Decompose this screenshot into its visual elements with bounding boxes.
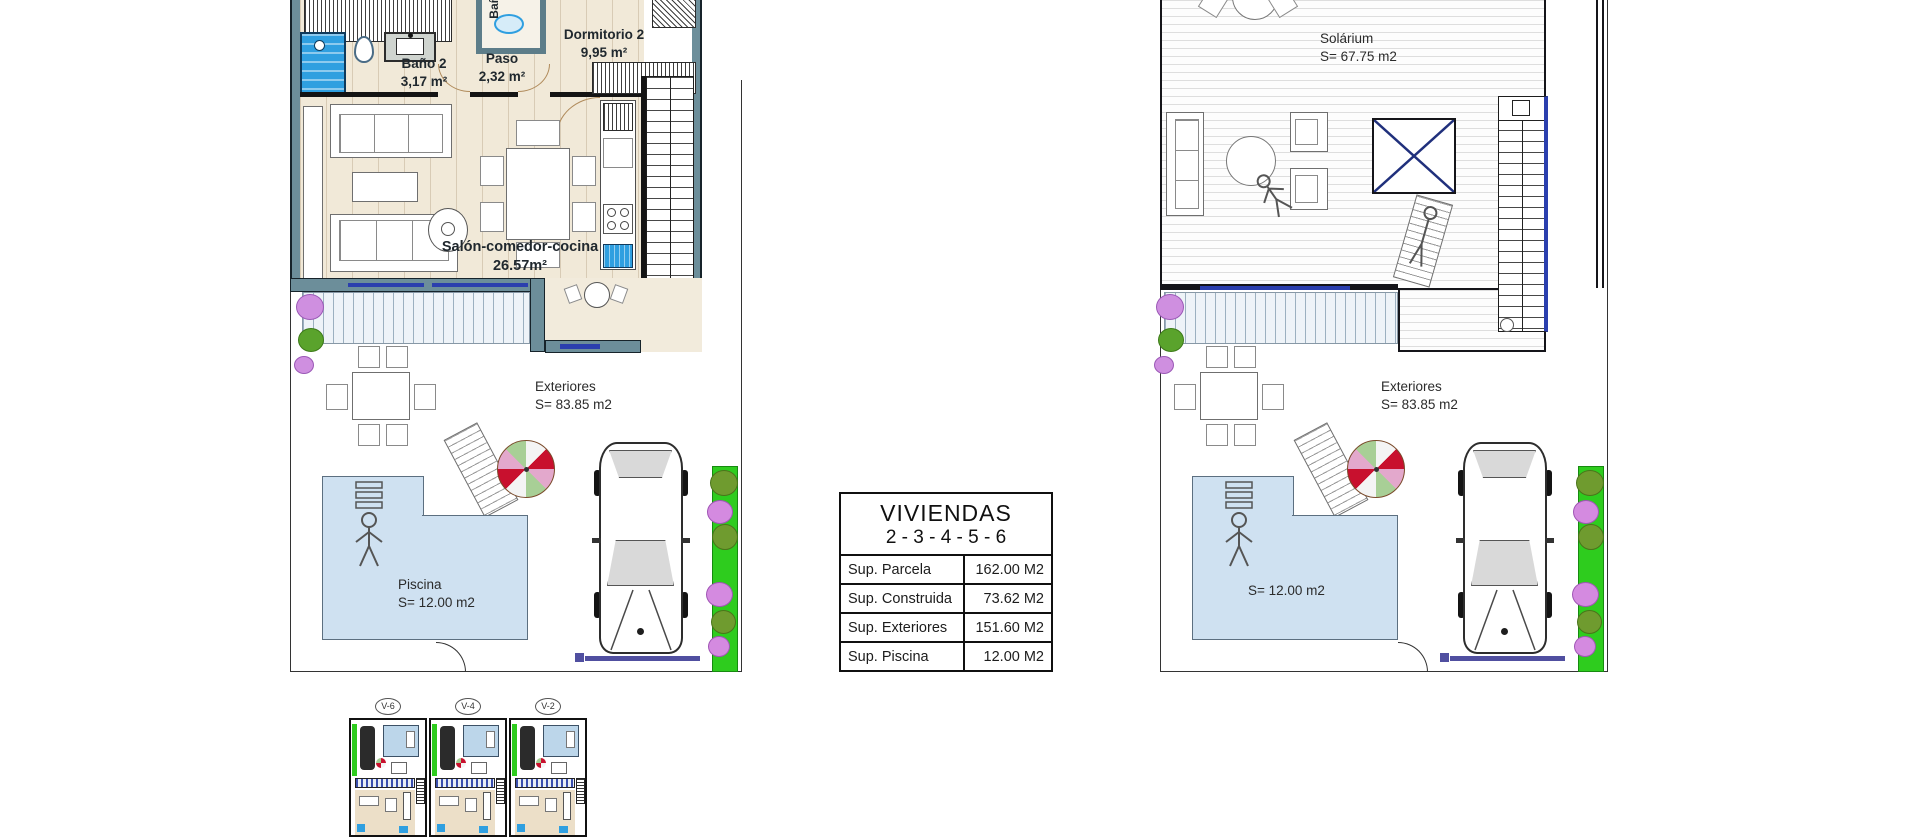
row-label: Sup. Parcela bbox=[841, 562, 963, 578]
chair bbox=[516, 120, 560, 146]
flower-bush bbox=[1156, 294, 1184, 320]
window-strip bbox=[1200, 286, 1350, 290]
hedge-flower bbox=[706, 582, 733, 607]
burner bbox=[607, 208, 616, 217]
mini-table bbox=[551, 762, 567, 774]
pergola-slats bbox=[1164, 292, 1398, 344]
mini-stairs bbox=[576, 778, 585, 804]
piscina-area: S= 12.00 m2 bbox=[398, 594, 475, 612]
salon-name: Salón-comedor-cocina bbox=[428, 238, 612, 257]
thumbnail-badge: V-2 bbox=[535, 698, 561, 715]
car-badge bbox=[1501, 628, 1508, 635]
car-mirror bbox=[1456, 538, 1465, 543]
sofa-cushions bbox=[1175, 119, 1199, 209]
mini-shower bbox=[357, 824, 365, 832]
garden-dining-table bbox=[352, 372, 410, 420]
mini-floor bbox=[515, 790, 575, 837]
porch-door-blue bbox=[560, 344, 600, 349]
piscina-label: Piscina S= 12.00 m2 bbox=[398, 576, 475, 612]
oven bbox=[603, 138, 633, 168]
garden-chair bbox=[414, 384, 436, 410]
paso-label: Paso 2,32 m² bbox=[452, 50, 552, 85]
parasol-pole bbox=[1374, 467, 1379, 472]
vanity-tap-icon bbox=[408, 33, 413, 38]
car-body bbox=[599, 442, 683, 654]
mini-stairs bbox=[416, 778, 425, 804]
mini-floor bbox=[355, 790, 415, 837]
skylight-x-square bbox=[1372, 118, 1456, 194]
roof-sofa bbox=[1166, 112, 1204, 216]
floorplan-sheet: Baño 3, Baño 2 3,17 m² Paso 2,32 m² Dorm… bbox=[0, 0, 1920, 837]
mini-sink bbox=[399, 826, 408, 833]
tv-unit bbox=[303, 106, 323, 296]
garden-chair bbox=[1174, 384, 1196, 410]
stair-centerline bbox=[1522, 97, 1523, 331]
driveway-gate bbox=[585, 656, 700, 661]
parasol-pole bbox=[524, 467, 529, 472]
garden-chair bbox=[1262, 384, 1284, 410]
garden-chair bbox=[386, 424, 408, 446]
stair-handrail-end bbox=[1500, 318, 1514, 332]
pool-right-label: S= 12.00 m2 bbox=[1248, 582, 1325, 600]
partition-wall bbox=[300, 92, 438, 97]
garden-chair bbox=[326, 384, 348, 410]
salon-area: 26.57m² bbox=[428, 257, 612, 276]
salon-label: Salón-comedor-cocina 26.57m² bbox=[428, 238, 612, 276]
garden-chair bbox=[1234, 346, 1256, 368]
mini-table bbox=[391, 762, 407, 774]
mini-sofa bbox=[519, 796, 539, 806]
car-badge bbox=[637, 628, 644, 635]
boundary-double-line bbox=[1596, 0, 1604, 288]
mini-hedge bbox=[512, 724, 517, 776]
car-rear-glass bbox=[1473, 450, 1536, 478]
burner bbox=[620, 208, 629, 217]
solarium-area: S= 67.75 m2 bbox=[1320, 48, 1397, 66]
hedge-bush bbox=[1576, 470, 1604, 496]
mini-parasol-icon bbox=[536, 758, 546, 768]
mini-hedge bbox=[352, 724, 357, 776]
mini-plan bbox=[509, 718, 587, 837]
mini-dining bbox=[545, 798, 557, 812]
roof-armchair bbox=[1290, 112, 1328, 152]
paso-area: 2,32 m² bbox=[452, 68, 552, 86]
hedge-bush bbox=[711, 610, 736, 634]
solarium-label: Solárium S= 67.75 m2 bbox=[1320, 30, 1397, 66]
row-label: Sup. Piscina bbox=[841, 649, 963, 665]
hedge-flower bbox=[707, 500, 733, 524]
car-mirror bbox=[681, 538, 690, 543]
flower-bush bbox=[296, 294, 324, 320]
exteriores-right-area: S= 83.85 m2 bbox=[1381, 396, 1458, 414]
car-windshield bbox=[1471, 540, 1538, 586]
garden-chair bbox=[1234, 424, 1256, 446]
mini-kitchen bbox=[403, 792, 411, 820]
green-bush bbox=[298, 328, 324, 352]
parasol-icon bbox=[497, 440, 555, 498]
exteriores-left-name: Exteriores bbox=[535, 378, 612, 396]
window-strip bbox=[348, 283, 424, 287]
fridge bbox=[603, 103, 633, 131]
mini-parasol-icon bbox=[376, 758, 386, 768]
garden-chair bbox=[1206, 424, 1228, 446]
burner bbox=[607, 221, 616, 230]
garden-chair bbox=[386, 346, 408, 368]
shower-drain-icon bbox=[314, 40, 325, 51]
car-top-view bbox=[596, 442, 686, 654]
sofa-cushions bbox=[339, 114, 443, 153]
row-label: Sup. Construida bbox=[841, 591, 963, 607]
mini-pergola bbox=[355, 778, 415, 788]
mini-lounger bbox=[406, 731, 415, 748]
chair bbox=[480, 202, 504, 232]
pool-left-edge bbox=[422, 515, 528, 516]
mini-pool bbox=[463, 725, 499, 757]
thumbnail-badge: V-6 bbox=[375, 698, 401, 715]
car-mirror bbox=[592, 538, 601, 543]
mini-floor bbox=[435, 790, 495, 837]
mini-car bbox=[360, 726, 375, 770]
paso-name: Paso bbox=[452, 50, 552, 68]
car-windshield bbox=[607, 540, 674, 586]
pool-ladder-figure bbox=[1212, 480, 1272, 572]
armchair-seat bbox=[1295, 119, 1318, 145]
flower-bush bbox=[1154, 356, 1174, 374]
garden-chair bbox=[358, 424, 380, 446]
roof-staircase bbox=[1498, 96, 1548, 332]
car-rear-glass bbox=[609, 450, 672, 478]
garden-chair bbox=[1206, 346, 1228, 368]
mini-lounger bbox=[486, 731, 495, 748]
mini-dining bbox=[465, 798, 477, 812]
mini-dining bbox=[385, 798, 397, 812]
mini-plan bbox=[429, 718, 507, 837]
mini-shower bbox=[437, 824, 445, 832]
bath-top-name: Baño bbox=[487, 0, 501, 19]
dining-table-indoor bbox=[506, 148, 570, 240]
stair-up-arrow-icon bbox=[1513, 101, 1529, 115]
hedge-flower bbox=[1573, 500, 1599, 524]
thumbnail-label: V-2 bbox=[541, 701, 555, 711]
hedge-flower bbox=[708, 636, 730, 657]
mini-pool bbox=[543, 725, 579, 757]
burner bbox=[620, 221, 629, 230]
exteriores-right-label: Exteriores S= 83.85 m2 bbox=[1381, 378, 1458, 414]
mini-kitchen bbox=[563, 792, 571, 820]
pool-right-edge bbox=[1292, 515, 1398, 516]
garden-dining-table bbox=[1200, 372, 1258, 420]
solarium-name: Solárium bbox=[1320, 30, 1397, 48]
mini-sofa bbox=[359, 796, 379, 806]
mini-shower bbox=[517, 824, 525, 832]
mini-sink bbox=[479, 826, 488, 833]
hedge-flower bbox=[1574, 636, 1596, 657]
bath-top-vertical-label: Baño 3, bbox=[487, 0, 501, 29]
car-top-view bbox=[1460, 442, 1550, 654]
mini-table bbox=[471, 762, 487, 774]
hedge-bush bbox=[710, 470, 738, 496]
gate-post bbox=[575, 653, 584, 662]
mini-car bbox=[440, 726, 455, 770]
garden-chair bbox=[358, 346, 380, 368]
exteriores-left-area: S= 83.85 m2 bbox=[535, 396, 612, 414]
roof-plan: Solárium S= 67.75 m2 bbox=[960, 0, 1920, 837]
porch-side-wall bbox=[530, 278, 545, 352]
hedge-bush bbox=[1578, 524, 1604, 550]
hedge-bush bbox=[712, 524, 738, 550]
mini-car bbox=[520, 726, 535, 770]
mini-stairs bbox=[496, 778, 505, 804]
row-label: Sup. Exteriores bbox=[841, 620, 963, 636]
hedge-bush bbox=[1577, 610, 1602, 634]
partition-wall bbox=[470, 92, 518, 97]
pool-right-area: S= 12.00 m2 bbox=[1248, 582, 1325, 600]
bed-top-right bbox=[652, 0, 696, 28]
driveway-gate bbox=[1450, 656, 1565, 661]
thumbnail-badge: V-4 bbox=[455, 698, 481, 715]
mini-lounger bbox=[566, 731, 575, 748]
car-hood-lines bbox=[1465, 586, 1545, 654]
mini-parasol-icon bbox=[456, 758, 466, 768]
flower-bush bbox=[294, 356, 314, 374]
thumbnail-label: V-4 bbox=[461, 701, 475, 711]
mini-sofa bbox=[439, 796, 459, 806]
dormitorio2-area: 9,95 m² bbox=[548, 44, 660, 62]
stove-burners bbox=[603, 204, 633, 234]
mini-plan bbox=[349, 718, 427, 837]
chair bbox=[572, 202, 596, 232]
mini-kitchen bbox=[483, 792, 491, 820]
car-hood-lines bbox=[601, 586, 681, 654]
car-body bbox=[1463, 442, 1547, 654]
vanity-sink-icon bbox=[396, 38, 424, 55]
exteriores-left-label: Exteriores S= 83.85 m2 bbox=[535, 378, 612, 414]
stair-arrow-box bbox=[1499, 97, 1544, 121]
thumbnail-label: V-6 bbox=[381, 701, 395, 711]
mini-pergola bbox=[515, 778, 575, 788]
piscina-name: Piscina bbox=[398, 576, 475, 594]
mini-pool bbox=[383, 725, 419, 757]
mini-pergola bbox=[435, 778, 495, 788]
coffee-table bbox=[352, 172, 418, 202]
skylight-x bbox=[1374, 120, 1454, 192]
site-thumbnails: V-6 V-4 bbox=[349, 696, 593, 837]
car-mirror bbox=[1545, 538, 1554, 543]
exteriores-right-name: Exteriores bbox=[1381, 378, 1458, 396]
pergola-slats bbox=[302, 292, 530, 344]
mini-sink bbox=[559, 826, 568, 833]
dormitorio2-label: Dormitorio 2 9,95 m² bbox=[548, 26, 660, 61]
chair bbox=[480, 156, 504, 186]
green-bush bbox=[1158, 328, 1184, 352]
bistro-table-icon bbox=[584, 282, 610, 308]
mini-hedge bbox=[432, 724, 437, 776]
parasol-icon bbox=[1347, 440, 1405, 498]
dormitorio2-name: Dormitorio 2 bbox=[548, 26, 660, 44]
pool-ladder-figure bbox=[342, 480, 402, 572]
sofa-top bbox=[330, 104, 452, 158]
window-strip bbox=[432, 283, 528, 287]
gate-post bbox=[1440, 653, 1449, 662]
plant-core bbox=[441, 222, 455, 236]
chair bbox=[572, 156, 596, 186]
hedge-flower bbox=[1572, 582, 1599, 607]
